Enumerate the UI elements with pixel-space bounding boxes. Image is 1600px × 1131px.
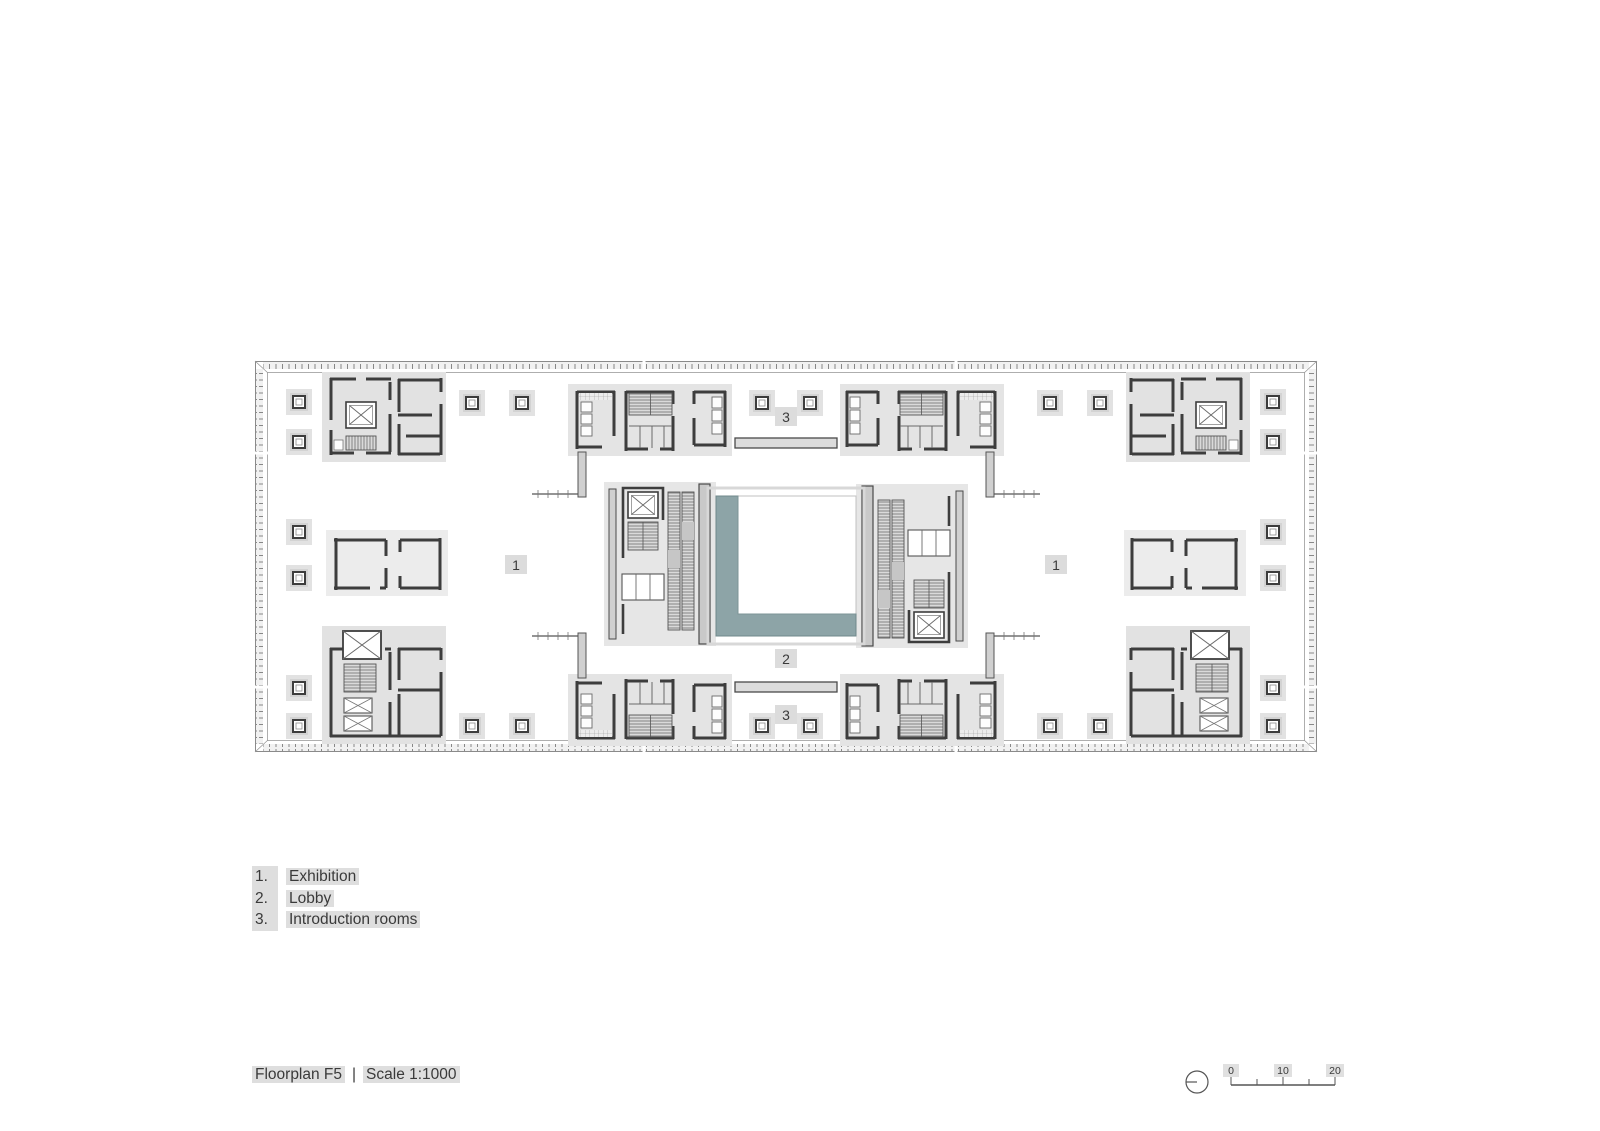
legend-number: 1. — [252, 866, 278, 888]
legend-label: Exhibition — [286, 868, 359, 885]
escalator-core-right — [856, 484, 968, 648]
scale-tick-10: 10 — [1277, 1065, 1289, 1077]
scale-tick-20: 20 — [1329, 1065, 1341, 1077]
room-label-introduction-top: 3 — [782, 409, 790, 425]
north-indicator — [1186, 1071, 1208, 1093]
bench-top — [735, 438, 837, 448]
courtyard — [708, 488, 864, 644]
scale-tick-0: 0 — [1228, 1065, 1234, 1077]
room-label-introduction-bottom: 3 — [782, 707, 790, 723]
corner-core-top-left — [322, 372, 446, 462]
center-cluster-top-left — [532, 384, 732, 498]
room-label-lobby: 2 — [782, 651, 790, 667]
title-separator: | — [352, 1066, 356, 1083]
legend-number: 3. — [252, 909, 278, 931]
legend-label: Lobby — [286, 890, 334, 907]
page: 1 1 2 3 3 0 10 20 1.Exhibition 2.Lobby 3… — [0, 0, 1600, 1131]
drawing-title: Floorplan F5 — [252, 1066, 345, 1083]
legend-item-introduction: 3.Introduction rooms — [252, 909, 420, 931]
wing-left — [322, 372, 448, 744]
floorplan-canvas: 1 1 2 3 3 0 10 20 — [0, 0, 1600, 1131]
room-label-exhibition-right: 1 — [1052, 557, 1060, 573]
bench-bottom — [735, 682, 837, 692]
legend-item-lobby: 2.Lobby — [252, 888, 420, 910]
legend-label: Introduction rooms — [286, 911, 420, 928]
corner-core-bottom-left — [322, 626, 446, 744]
escalator-core-left — [604, 482, 716, 646]
legend-number: 2. — [252, 888, 278, 910]
wing-right — [1124, 372, 1250, 744]
room-label-exhibition-left: 1 — [512, 557, 520, 573]
legend-item-exhibition: 1.Exhibition — [252, 866, 420, 888]
scale-bar: 0 10 20 — [1223, 1064, 1344, 1085]
legend: 1.Exhibition 2.Lobby 3.Introduction room… — [252, 866, 420, 931]
mid-rooms-left — [326, 530, 448, 596]
drawing-title-block: Floorplan F5|Scale 1:1000 — [252, 1066, 460, 1084]
drawing-scale: Scale 1:1000 — [363, 1066, 460, 1083]
